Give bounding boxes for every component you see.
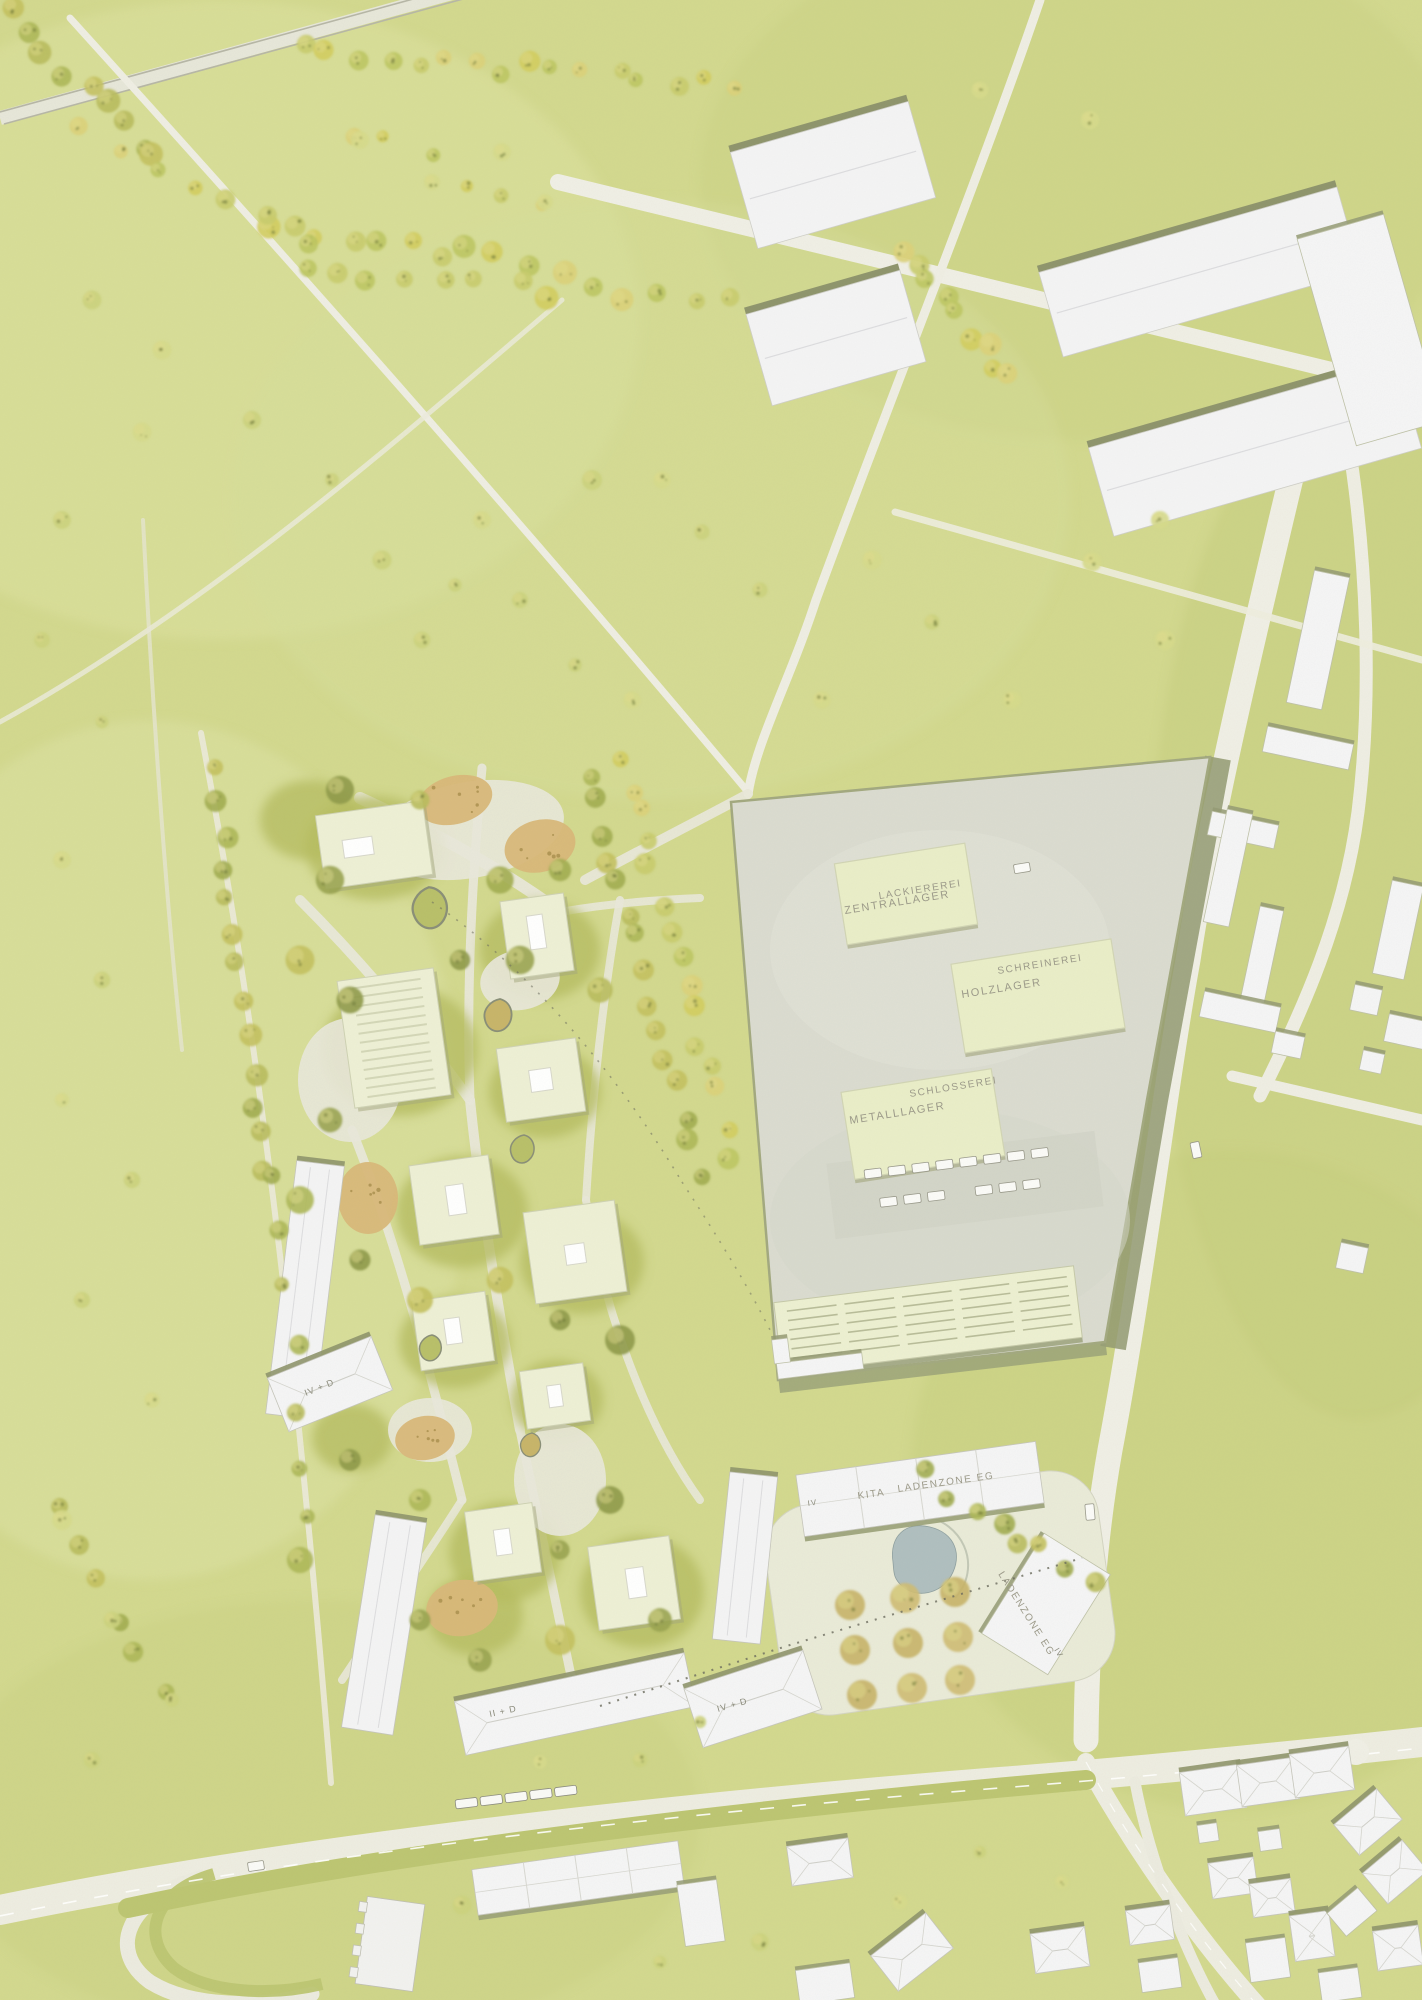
site-plan-map: LACKIEREREI ZENTRALLAGER SCHREINEREI HOL… bbox=[0, 0, 1422, 2000]
site-plan-canvas: LACKIEREREI ZENTRALLAGER SCHREINEREI HOL… bbox=[0, 0, 1422, 2000]
paper-texture-overlay bbox=[0, 0, 1422, 2000]
